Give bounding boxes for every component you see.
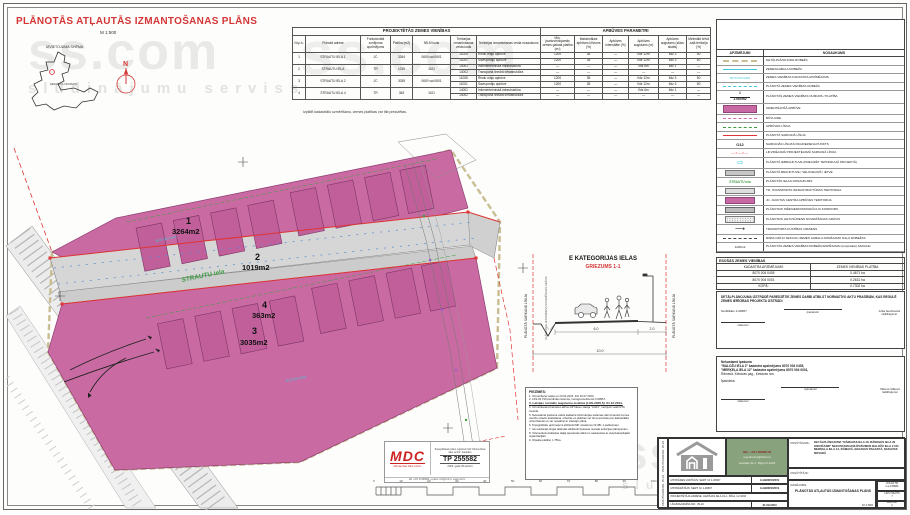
legend-item: —×—×—LIKVIDĒJAMĀ PROJEKTĒJAMĀ SARKANĀ LĪ…	[717, 149, 904, 158]
legend-label: PLĀNOTĀ SARKANĀ LĪNIJA	[764, 133, 904, 137]
location-schema-map	[28, 50, 112, 112]
legend-item: PLĀNOTAIS LIETUSŪDENS NOVADĪŠANAS GRĀVIS	[717, 215, 904, 225]
legend-item: JC, JAUKTAS CENTRA APBŪVES TERITORIJA	[717, 196, 904, 206]
scale-bar-graphic	[376, 487, 660, 495]
statement-text: DETĀLPLĀNOJUMA IZSTRĀDĒ PAREDZĒTIE ZEMES…	[721, 295, 900, 303]
pedestrian-glyphs	[604, 296, 630, 319]
col-header: Maksimālais apbūves blīvums (%)	[575, 36, 603, 53]
legend-label: PLĀNOTĀ IEBRAUKTUVE (PRECIZĒT TEHNISKAJĀ…	[764, 160, 904, 164]
params-title: APBŪVES PARAMETRI	[541, 28, 711, 36]
legend-item: ⟶TRANSPORTA KUSTĪBAS VIRZIENS	[717, 225, 904, 235]
titleblock-row: PROJEKTĒTĀJA ADRESE: LIEPĀJAS IELA 31-1,…	[668, 493, 788, 501]
plan-scale: M 1:500	[100, 30, 116, 35]
parcel-2-number: 2	[255, 252, 260, 262]
drawing-sheet: ss.com sludinājumu serviss ss.com ss.com…	[0, 0, 910, 513]
car-glyph	[575, 304, 597, 318]
legend-label: APBŪVES LĪNIJA	[764, 125, 904, 129]
drawing-scale: M 1:500	[862, 503, 873, 507]
col-header: Platība (m2)	[391, 36, 413, 53]
note-item: 9. Objekta platība: 1.75ha.	[529, 439, 634, 442]
note-item: 5. Nekustamā īpašuma valsts kadastra inf…	[529, 414, 634, 424]
titleblock-row: IZSTRĀDES VADĪTĀJS: SERT. Nr 1-00667 A.G…	[668, 476, 788, 484]
signature-caption: /paraksts/	[806, 311, 819, 315]
parcel-4-number: 4	[262, 300, 267, 310]
legend-label: BŪVLAIDE	[764, 116, 904, 120]
legend-symbol-rect-midgray	[717, 206, 764, 215]
drawing-title: PLĀNOTĀS ATĻAUTĀS IZMANTOŠANAS PLĀNS	[793, 490, 873, 494]
existing-table-row: KOPĀ:0.7302 ha	[717, 283, 905, 289]
legend-symbol-rect-gray	[717, 169, 764, 178]
ground-profile	[533, 321, 666, 336]
legend-item: 8070 004 0405ZEMES VIENĪBAS KADASTRA APZ…	[717, 74, 904, 83]
section-title: E KATEGORIJAS IELAS	[569, 256, 637, 262]
legend-symbol-arrow-cyan: ⇨	[717, 158, 764, 168]
dim-side: 2.0	[650, 327, 655, 331]
table-footnote: Izpildīt kadastrālo uzmērīšanu, zemes pl…	[303, 110, 407, 114]
col-header: Apbūves intensitāte (%)	[603, 36, 629, 53]
col-header: Minimālā brīvā zaļā teritorija (%)	[687, 36, 711, 53]
col-header: NĪLM kods	[413, 36, 451, 53]
certificate: Sertifikāts 1-00667	[721, 309, 747, 317]
company-logo	[668, 438, 726, 476]
legend-symbol-rect-pink-big	[717, 104, 764, 114]
municipality-outline	[32, 52, 98, 110]
red-line-right-label: PLĀNOTĀ SARKANĀ LĪNIJA	[672, 293, 676, 338]
legend-symbol-rect-dotted	[717, 215, 764, 224]
legend-item: ORIENTĒJOŠĀ APBŪVE	[717, 104, 904, 115]
legend-symbol-dash-olive	[717, 57, 764, 65]
legend-item: STRAUTU ielaPLĀNOTĀS IELAS NOSAUKUMS	[717, 178, 904, 187]
sheet-info-column: LKS-92 TM m.a 0.99961 LAPU SKAITS 7 LAPA…	[876, 480, 906, 509]
parcel-2-area-label: 1019m2	[242, 263, 270, 272]
street-lamp-glyph	[643, 274, 653, 322]
col-header: Teritorijas izmantošanas veida kods	[451, 36, 477, 53]
legend-symbol-xdash-red: —×—×—	[717, 149, 764, 157]
col-header: Apbūves augstums (stāvu skaits)	[659, 36, 687, 53]
stamp-registration-text: Topogrāfiskais plāns reģistrēts SIA "Mēr…	[431, 449, 489, 454]
legend-item: BŪVLAIDE	[717, 115, 904, 124]
legend-label: PLĀNOTĀ BRAUKTUVE / VELOCELIŅŠ / IETVE	[764, 171, 904, 175]
legend-symbol-num-area: 11.060m2	[717, 91, 764, 102]
col-header: Apbūves augstums (m)	[629, 36, 659, 53]
parcel-4-area-label: 363m2	[252, 311, 275, 320]
section-subtitle: GRIEZUMS 1-1	[585, 264, 620, 270]
legend-symbol-line-cyan	[717, 66, 764, 74]
legend-symbol-dash-pink	[717, 115, 764, 123]
order-text: DETĀLPLĀNOJUMA "RĀMAVAS IELA 18, RĀMAVAS…	[814, 439, 905, 467]
legend-blank-header	[717, 20, 904, 50]
legend-label: PLĀNOTĀ ZEMES VIENĪBAS ROBEŽA	[764, 84, 904, 88]
legend-label: JC, JAUKTAS CENTRA APBŪVES TERITORIJA	[764, 198, 904, 202]
title-block: PASŪTĪJUMA NR. 35-24 PASŪTĪJUMA NR. 35-2…	[657, 437, 905, 508]
titleblock-row: LĪGUMA/ARHĪVA NR.: 35-24 31.09.2024	[668, 501, 788, 509]
parcel-3-number: 3	[252, 326, 257, 336]
legend-item: PLĀNOTĀ BRAUKTUVE / VELOCELIŅŠ / IETVE	[717, 169, 904, 179]
legend-label: TRANSPORTA KUSTĪBAS VIRZIENS	[764, 227, 904, 231]
scale-bar: 0102030405060708090100 m	[372, 479, 660, 503]
parcel-3-area-label: 3035m2	[240, 338, 268, 347]
legend-label: PLĀNOTAIS LIETUSŪDENS NOVADĪŠANAS GRĀVIS	[764, 217, 904, 221]
logo-roof	[677, 443, 717, 455]
legend-item: 1200m2PLĀNOTĀS ZEMES VIENĪBAS ROBEŽA IES…	[717, 243, 904, 252]
col-header: Min. jaunizveidojamās zemes gabala platī…	[541, 36, 575, 53]
legend-item: PLĀNOTAIS INŽENIERKOMUNIKĀCIJU KORIDORS	[717, 206, 904, 216]
legend-symbol-text-cyan: 8070 004 0405	[717, 74, 764, 82]
legend-symbol-rect-lightgray	[717, 187, 764, 196]
stamp-date: 2023. gada 06.oktobrī	[447, 465, 472, 468]
legend-item: ZEMESGABALA ROBEŽA	[717, 66, 904, 75]
ditch-label: PLĀNOTAIS LIETUSŪDENS NOVADĪŠANAS GRĀVIS	[543, 276, 548, 339]
mdc-logo: MDC Mērniecības Datu Centrs	[385, 442, 431, 475]
col-header: Plānotā adrese	[306, 36, 361, 53]
col-header: Funkcionālā zonējuma apzīmējums	[361, 36, 391, 53]
statement-box: DETĀLPLĀNOJUMA IZSTRĀDĒ PAREDZĒTIE ZEMES…	[716, 291, 905, 349]
legend-col-symbols: APZĪMĒJUMI	[717, 50, 764, 56]
note-item: 6. Topogrāfiskie apzīmējumi atbilstoši M…	[529, 424, 634, 427]
parcel-1-number: 1	[186, 216, 191, 226]
legend-label: RINDU MĀJU SEKCIJU ZEMES GABALA DOMĀJAMO…	[764, 236, 904, 240]
legend-label: PLĀNOTĀS IELAS NOSAUKUMS	[764, 180, 904, 184]
legend-symbol-text-green: STRAUTU iela	[717, 178, 764, 186]
legend-label: SARKANĀS LĪNIJAS PAGRIEZIENA PUNKTS	[764, 142, 904, 146]
titleblock-row: IZSTRĀDĀTĀJS: SERT. Nr 1-00667 A.GEDROVI…	[668, 484, 788, 492]
surveyor-stamp: MDC Mērniecības Datu Centrs Topogrāfiska…	[384, 441, 490, 483]
legend-item: ⇨PLĀNOTĀ IEBRAUKTUVE (PRECIZĒT TEHNISKAJ…	[717, 158, 904, 169]
legend-label: DETĀLPLĀNOJUMA ROBEŽA	[764, 59, 904, 63]
legend-label: LIKVIDĒJAMĀ PROJEKTĒJAMĀ SARKANĀ LĪNIJA	[764, 151, 904, 155]
dim-total: 10.0	[597, 349, 604, 353]
legend-label: PLĀNOTĀS ZEMES VIENĪBAS ROBEŽA IESPĒJAMA…	[764, 245, 904, 249]
notes-box: PIEZĪMES: 1. Uzmērīšana veikta no 23.02.…	[525, 387, 638, 480]
legend-item: TR, TRANSPORTA INFRASTRUKTŪRAS TERITORIJ…	[717, 187, 904, 197]
legend-label: ZEMESGABALA ROBEŽA	[764, 67, 904, 71]
table-title: PROJEKTĒTĀS ZEMES VIENĪBAS	[293, 28, 541, 36]
projected-land-units-table: PROJEKTĒTĀS ZEMES VIENĪBASAPBŪVES PARAME…	[292, 27, 710, 100]
legend-symbol-arrow-black: ⟶	[717, 225, 764, 234]
owner-box: Nekustamā īpašuma "BALOŽU IELA 2" kadast…	[716, 356, 905, 432]
legend-item: DETĀLPLĀNOJUMA ROBEŽA	[717, 57, 904, 66]
legend-symbol-dash-cyan	[717, 83, 764, 91]
page-title: PLĀNOTĀS ATĻAUTĀS IZMANTOŠANAS PLĀNS	[16, 16, 257, 27]
legend-item: APBŪVES LĪNIJA	[717, 123, 904, 132]
legend-item: RINDU MĀJU SEKCIJU ZEMES GABALA DOMĀJAMO…	[717, 235, 904, 244]
site-location-marker	[50, 70, 55, 75]
existing-land-units-table: ESOŠĀS ZEMES VIENĪBASKADASTRA APZĪMĒJUMS…	[716, 257, 905, 290]
legend-label: ORIENTĒJOŠĀ APBŪVE	[764, 106, 904, 110]
street-cross-section: E KATEGORIJAS IELAS GRIEZUMS 1-1 PLĀNOTĀ…	[503, 246, 711, 394]
contact-box: tālr.: +371 29326143 a.gedrovics@inbox.l…	[726, 438, 788, 476]
legend-symbol-rect-pink	[717, 196, 764, 205]
legend-label: PLĀNOTAIS INŽENIERKOMUNIKĀCIJU KORIDORS	[764, 208, 904, 212]
titleblock-side-strip: PASŪTĪJUMA NR. 35-24 PASŪTĪJUMA NR. 35-2…	[658, 438, 668, 509]
legend-item: PLĀNOTĀ SARKANĀ LĪNIJA	[717, 132, 904, 141]
red-line-left-label: PLĀNOTĀ SARKANĀ LĪNIJA	[524, 293, 528, 338]
legend-label: PLĀNOTĀS ZEMES VIENĪBAS NUMURS / PLATĪBA	[764, 95, 904, 99]
note-item: 4. Uzmērīšanā izmantota LatPos GP bāzes …	[529, 406, 634, 412]
legend-item: 11.060m2PLĀNOTĀS ZEMES VIENĪBAS NUMURS /…	[717, 91, 904, 103]
legend-symbol-line-red	[717, 132, 764, 140]
dim-carriageway: 6.0	[594, 327, 599, 331]
date-caption: /datums/	[737, 324, 748, 328]
legend-symbol-dashdot-green	[717, 123, 764, 131]
municipality-label: ĶEKAVAS NOVADS	[50, 82, 77, 86]
location-schema-label: IZVIETOJUMA SHĒMA	[46, 45, 83, 49]
legend-symbol-text-small: 1200m2	[717, 243, 764, 251]
note-item: 7. Ielu sarkanās līnijas attēlotas atbil…	[529, 428, 634, 431]
stamp-number: TP 255582	[440, 455, 480, 464]
drawing-cell: RASĒJUMS: PLĀNOTĀS ATĻAUTĀS IZMANTOŠANAS…	[788, 480, 876, 509]
legend-label: ZEMES VIENĪBAS KADASTRA APZĪMĒJUMS	[764, 76, 904, 80]
col-header: Teritorijas izmantošanas veida nosaukums	[477, 36, 541, 53]
legend-item: PLĀNOTĀ ZEMES VIENĪBAS ROBEŽA	[717, 83, 904, 92]
client-cell: PASŪTĪTĀJS:	[788, 468, 906, 480]
note-item: 8. Inženierkomunikācijas daļēji apsekota…	[529, 432, 634, 438]
order-cell: PASŪTĪJUMS: DETĀLPLĀNOJUMA "RĀMAVAS IELA…	[788, 438, 906, 468]
north-label: N	[123, 61, 128, 68]
owner-line: Rāmavā, Ķekavas pag., Ķekavas nov.	[721, 372, 900, 376]
legend: APZĪMĒJUMI NOSAUKUMS DETĀLPLĀNOJUMA ROBE…	[716, 19, 905, 253]
col-header: Nr.p.k.	[293, 36, 306, 53]
legend-symbol-text-red: O12	[717, 140, 764, 148]
legend-symbol-dash-black	[717, 235, 764, 243]
north-arrow: N	[112, 56, 140, 98]
legend-col-names: NOSAUKUMS	[764, 50, 904, 56]
legend-item: O12SARKANĀS LĪNIJAS PAGRIEZIENA PUNKTS	[717, 140, 904, 149]
notes-title: PIEZĪMES:	[529, 390, 634, 394]
legend-label: TR, TRANSPORTA INFRASTRUKTŪRAS TERITORIJ…	[764, 189, 904, 193]
owner-label: Īpašnieks:	[721, 379, 900, 383]
